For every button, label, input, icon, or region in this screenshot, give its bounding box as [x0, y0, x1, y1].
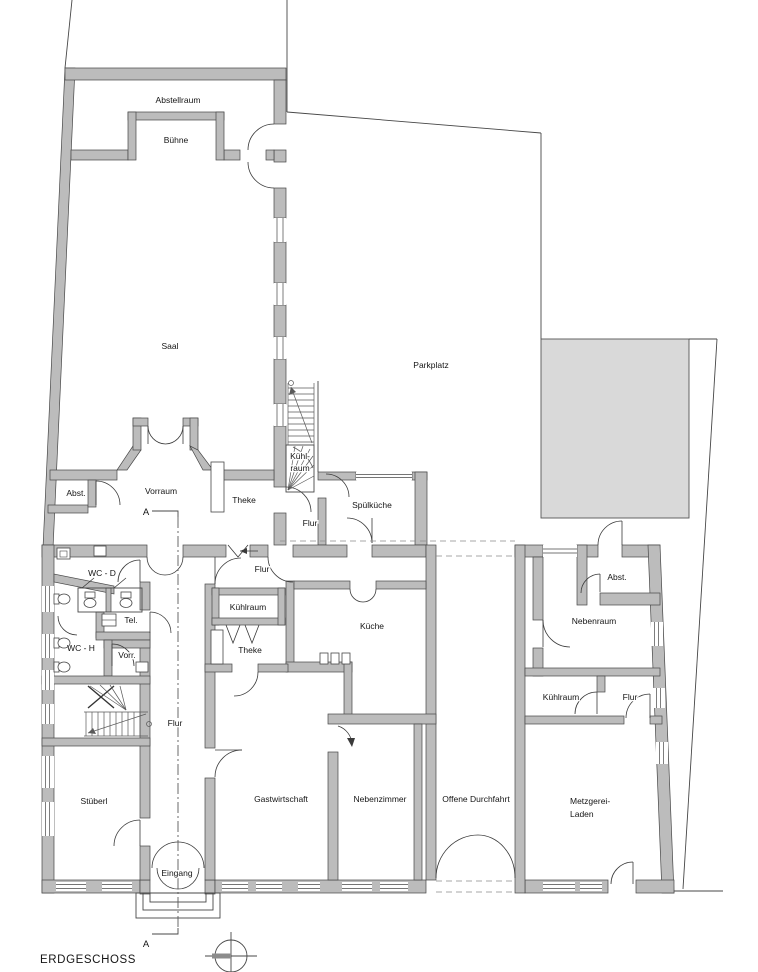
room-label-flur-service: Flur [255, 564, 270, 574]
toilet [58, 594, 70, 604]
room-label-flur-upper: Flur [303, 518, 318, 528]
room-label-kueche: Küche [360, 621, 384, 631]
room-label-buehne: Bühne [164, 135, 189, 145]
site-outlines [65, 0, 723, 891]
room-label-abst-left: Abst. [66, 488, 85, 498]
room-label-wc-d: WC - D [88, 568, 116, 578]
tap [331, 653, 339, 664]
north-symbol-tick [212, 954, 231, 959]
room-label-abstellraum: Abstellraum [156, 95, 201, 105]
room-label-flur-right: Flur [623, 692, 638, 702]
sink [57, 548, 70, 559]
room-label-stueberl: Stüberl [81, 796, 108, 806]
room-label-metzgerei: Metzgerei-Laden [570, 796, 610, 819]
room-label-durchfahrt: Offene Durchfahrt [442, 794, 510, 804]
room-label-gastwirtschaft: Gastwirtschaft [254, 794, 308, 804]
room-label-wc-h: WC - H [67, 643, 95, 653]
room-label-theke-bar: Theke [238, 645, 262, 655]
floor-plan-page: A A Abstellraum Bühne Saal Parkplatz Abs… [0, 0, 758, 972]
page-title: ERDGESCHOSS [40, 954, 136, 966]
section-marker-top: A [143, 507, 150, 518]
room-label-eingang: Eingang [161, 868, 192, 878]
bar-counter-gastwirtschaft [211, 630, 223, 664]
room-label-vorr: Vorr. [118, 650, 135, 660]
fixtures [54, 462, 350, 672]
room-label-nebenzimmer: Nebenzimmer [354, 794, 407, 804]
floor-plan-canvas: A A Abstellraum Bühne Saal Parkplatz Abs… [0, 0, 758, 972]
neighbor-building-block [541, 339, 689, 518]
room-label-saal: Saal [161, 341, 178, 351]
toilet [84, 599, 96, 608]
toilet [120, 599, 132, 608]
tap [320, 653, 328, 664]
room-label-abst-right: Abst. [607, 572, 626, 582]
room-label-theke-saal: Theke [232, 495, 256, 505]
main-building-walls [42, 545, 674, 894]
room-label-kuehlraum-bar: Kühlraum [230, 602, 266, 612]
toilet [58, 662, 70, 672]
tap [342, 653, 350, 664]
room-label-kuehlraum-stair: Kühl-raum [290, 451, 310, 473]
section-marker-bottom: A [143, 939, 150, 950]
staircase-parkplatz [286, 381, 314, 493]
sink [136, 662, 148, 672]
room-label-vorraum: Vorraum [145, 486, 177, 496]
bar-counter-saal [211, 462, 224, 512]
flue [94, 546, 106, 556]
room-label-parkplatz: Parkplatz [413, 360, 448, 370]
room-label-flur-main: Flur [168, 718, 183, 728]
room-label-tel: Tel. [124, 615, 137, 625]
north-symbol [205, 932, 257, 972]
room-label-kuehlraum-right: Kühlraum [543, 692, 579, 702]
room-label-spuelkueche: Spülküche [352, 500, 392, 510]
room-label-nebenraum: Nebenraum [572, 616, 616, 626]
